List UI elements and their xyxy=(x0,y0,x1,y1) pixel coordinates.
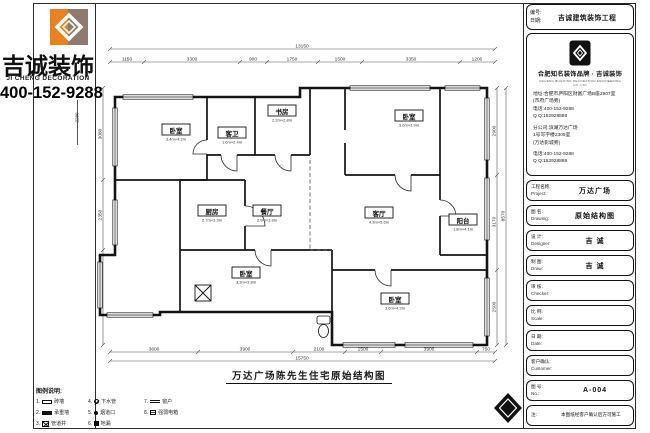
interior-walls xyxy=(115,88,487,312)
legend-item-window: 7. 窗户 xyxy=(144,398,194,405)
door-swings xyxy=(193,140,456,286)
field-project-name-value: 万达广场 xyxy=(561,186,629,196)
company-stamp xyxy=(494,393,522,423)
field-checker: 审 核:Checker: xyxy=(526,280,634,301)
drawing-sheet: { "brand": { "name": "吉诚装饰", "name_en": … xyxy=(0,0,650,433)
legend-item-drain-pipe: 4. 下水管 xyxy=(88,398,144,405)
svg-text:2.9m×3.8m: 2.9m×3.8m xyxy=(257,218,278,223)
number-label: 编号: xyxy=(530,9,541,18)
field-draftsman: 制 图:Draw: 吉 诚 xyxy=(526,255,634,276)
legend: 图例说明: 1. 砖墙 4. 下水管 7. 窗户 2. 承重墙 5. 烟道口 8… xyxy=(36,386,194,427)
legend-item-bearing-wall: 2. 承重墙 xyxy=(36,409,88,416)
dim-top-5: 1500 xyxy=(335,57,346,63)
exterior-walls xyxy=(100,88,487,345)
legend-item-pipe-shaft: 3. 管道井 xyxy=(36,420,88,427)
room-label-kitchen: 厨房 2.7m×3.3m xyxy=(198,205,226,223)
room-label-bath: 客卫 1.6m×2.4m xyxy=(218,127,246,145)
dim-right-total: 8570 xyxy=(501,210,507,221)
windows xyxy=(98,86,489,347)
titleblock-header: 编号: 日期: 吉诚建筑装饰工程 xyxy=(526,4,634,30)
svg-text:客厅: 客厅 xyxy=(372,209,387,218)
field-drawing-name-value: 原始结构图 xyxy=(561,211,629,221)
bearing-wall-symbol xyxy=(42,411,52,415)
titleblock-header-labels: 编号: 日期: xyxy=(530,9,541,26)
svg-text:餐厅: 餐厅 xyxy=(260,207,275,216)
room-label-balcony: 阳台 1.8m×4.1m xyxy=(449,214,477,232)
field-note-value: 本图纸经客户确认后方可施工 xyxy=(561,412,629,418)
dim-top-6: 3350 xyxy=(406,57,417,63)
field-drawing-name: 图 名:Drawing: 原始结构图 xyxy=(526,205,634,226)
company-tagline-en: JICHENG BUILDING DECORATION ENGINEERING … xyxy=(533,79,627,87)
brick-wall-symbol xyxy=(42,400,52,404)
dim-top-1: 1150 xyxy=(122,57,133,63)
brand-name-en: JI CHENG DECORATION xyxy=(0,75,96,82)
dim-bottom-total: 15750 xyxy=(295,356,309,362)
field-date: 日 期:Date: xyxy=(526,330,634,351)
dim-right-3: 2500 xyxy=(492,301,498,312)
svg-text:3.6m×3.9m: 3.6m×3.9m xyxy=(399,123,420,128)
floor-drain-symbol xyxy=(94,421,99,426)
svg-text:书房: 书房 xyxy=(276,107,290,116)
window-symbol xyxy=(150,400,160,403)
drawing-title-row: 万达广场陈先生住宅原始结构图 xyxy=(95,366,523,384)
room-label-study: 书房 2.2m×2.8m xyxy=(268,105,296,123)
dim-top-total: 13150 xyxy=(295,44,309,50)
titleblock-logo-icon xyxy=(569,40,591,66)
drain-pipe-symbol xyxy=(94,399,99,404)
svg-text:2.2m×2.8m: 2.2m×2.8m xyxy=(272,118,293,123)
svg-text:4.3m×5.6m: 4.3m×5.6m xyxy=(369,220,390,225)
legend-item-flue: 5. 烟道口 xyxy=(88,409,144,416)
company-contact-3: 电话:400-152-9288 Q Q:152928888 xyxy=(533,151,627,166)
dim-bottom-2: 3900 xyxy=(240,347,251,353)
svg-text:3.3m×3.8m: 3.3m×3.8m xyxy=(236,280,257,285)
svg-text:卧室: 卧室 xyxy=(389,295,403,304)
svg-text:厨房: 厨房 xyxy=(206,207,220,216)
field-designer: 设 计:Designer: 吉 诚 xyxy=(526,230,634,251)
room-label-bedroom-bottomleft: 卧室 3.3m×3.8m xyxy=(232,267,260,285)
logo-taupe-half xyxy=(68,9,88,45)
dashed-reference-lines xyxy=(310,160,332,250)
legend-item-electric-box: 8. 强弱电箱 xyxy=(144,409,194,416)
drawing-title: 万达广场陈先生住宅原始结构图 xyxy=(226,368,392,384)
room-label-bedroom-topright: 卧室 3.6m×3.9m xyxy=(395,110,423,128)
outer-left-dimension-value: 2280 xyxy=(75,104,80,132)
electric-box-symbol xyxy=(150,410,156,415)
titleblock-company-card: 合肥知名装饰品牌 · 吉诚装饰 JICHENG BUILDING DECORAT… xyxy=(526,33,634,176)
field-customer-confirm: 客户确认:Customer: xyxy=(526,355,634,376)
dim-bottom-3: 2100 xyxy=(314,347,325,353)
legend-title: 图例说明: xyxy=(36,386,194,395)
svg-text:1.8m×4.1m: 1.8m×4.1m xyxy=(453,227,474,232)
legend-grid: 1. 砖墙 4. 下水管 7. 窗户 2. 承重墙 5. 烟道口 8. 强弱电箱 xyxy=(36,398,194,427)
room-label-bedroom-bottomright: 卧室 3.6m×4.2m xyxy=(381,293,409,311)
field-note: 注: 本图纸经客户确认后方可施工 xyxy=(526,405,634,426)
field-scale: 比 例:Scale: xyxy=(526,305,634,326)
field-project-name: 工程名称:Project: 万达广场 xyxy=(526,180,634,201)
svg-text:3.4m×4.2m: 3.4m×4.2m xyxy=(166,137,187,142)
dim-right-1: 2900 xyxy=(492,125,498,136)
dimension-lines xyxy=(101,47,508,363)
brand-phone: 400-152-9288 xyxy=(0,84,96,103)
pipe-shaft xyxy=(195,285,211,301)
dim-top-3: 900 xyxy=(249,57,257,63)
legend-item-brick-wall: 1. 砖墙 xyxy=(36,398,88,405)
company-contact-1: 地址:合肥市庐阳区财富广场B座2907室 (市府广场旁) 电话:400-152-… xyxy=(533,91,627,121)
svg-text:3.6m×4.2m: 3.6m×4.2m xyxy=(385,306,406,311)
dim-bottom-1: 3600 xyxy=(149,347,160,353)
room-label-living: 客厅 4.3m×5.6m xyxy=(365,207,393,225)
field-designer-value: 吉 诚 xyxy=(561,236,629,246)
field-drawing-number-value: A-004 xyxy=(561,387,629,394)
company-contact-2: 分公司:滨湖万达广场 1号写字楼2305室 (万达影城旁) xyxy=(533,125,627,147)
title-block-divider xyxy=(523,3,524,429)
dim-left-1: 3080 xyxy=(98,128,104,139)
svg-text:卧室: 卧室 xyxy=(170,126,184,135)
svg-text:卧室: 卧室 xyxy=(240,269,254,278)
pipe-shaft-symbol xyxy=(42,421,49,427)
svg-text:1.6m×2.4m: 1.6m×2.4m xyxy=(222,140,243,145)
dim-top-7: 1200 xyxy=(472,57,483,63)
room-label-bedroom-topleft: 卧室 3.4m×4.2m xyxy=(162,124,190,142)
company-logo xyxy=(48,6,90,48)
svg-text:卧室: 卧室 xyxy=(403,112,417,121)
flue-symbol xyxy=(94,411,98,415)
svg-text:2.7m×3.3m: 2.7m×3.3m xyxy=(202,218,223,223)
field-drawing-number: 图 号:No.: A-004 xyxy=(526,380,634,401)
dim-left-2: 2350 xyxy=(98,209,104,220)
field-draftsman-value: 吉 诚 xyxy=(561,261,629,271)
svg-text:阳台: 阳台 xyxy=(457,216,471,225)
dim-top-4: 1750 xyxy=(287,57,298,63)
dim-top-2: 3300 xyxy=(187,57,198,63)
room-labels: 卧室 3.4m×4.2m 客卫 1.6m×2.4m 书房 2.2m×2.8m 卧… xyxy=(162,105,477,311)
svg-text:客卫: 客卫 xyxy=(225,129,240,138)
dim-bottom-6: 750 xyxy=(482,347,490,353)
room-label-dining: 餐厅 2.9m×3.8m xyxy=(253,205,281,223)
dim-right-2: 3170 xyxy=(492,216,498,227)
toilet-fixture xyxy=(317,316,330,338)
company-short-name: 吉诚建筑装饰工程 xyxy=(544,12,630,22)
date-label: 日期: xyxy=(530,17,541,26)
company-tagline: 合肥知名装饰品牌 · 吉诚装饰 xyxy=(533,69,627,78)
legend-item-floor-drain: 6. 地漏 xyxy=(88,420,144,427)
